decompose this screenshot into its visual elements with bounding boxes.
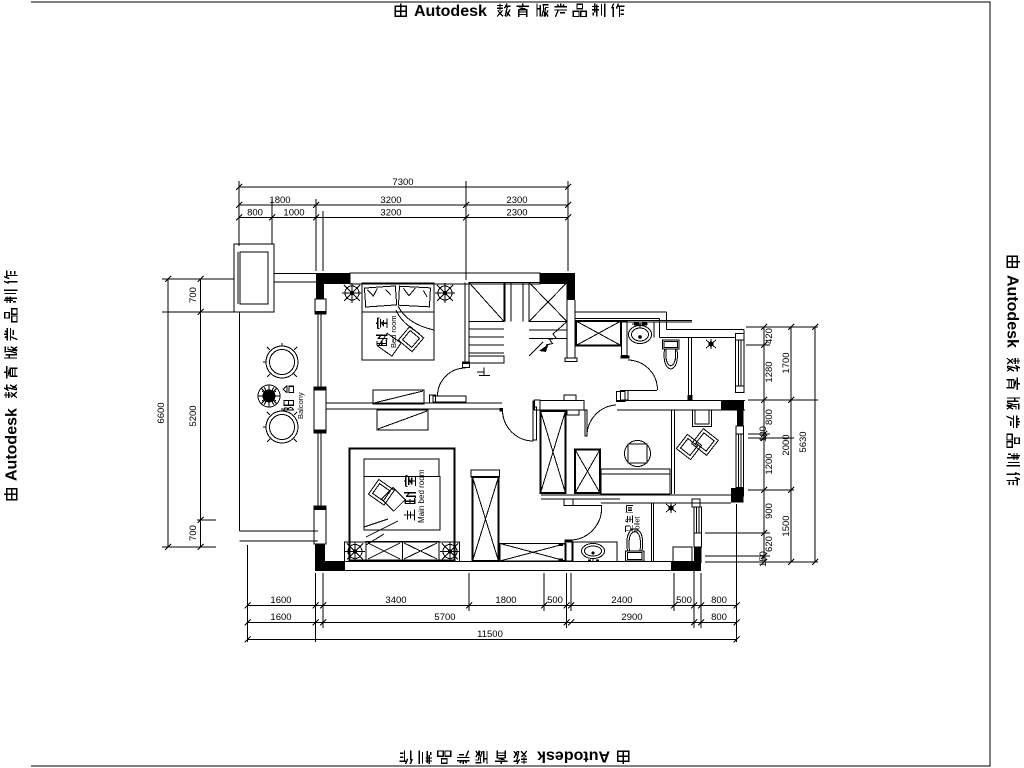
svg-text:2000: 2000 [781, 434, 792, 455]
svg-text:7300: 7300 [392, 177, 413, 188]
svg-text:11500: 11500 [477, 629, 503, 640]
svg-text:Main bed room: Main bed room [417, 469, 426, 523]
svg-text:420: 420 [764, 328, 775, 344]
svg-text:1700: 1700 [781, 352, 792, 373]
svg-text:Toilet: Toilet [635, 517, 642, 533]
svg-text:5630: 5630 [798, 431, 809, 452]
svg-text:1800: 1800 [269, 195, 290, 206]
svg-text:1800: 1800 [495, 595, 516, 606]
svg-text:Autodesk: Autodesk [537, 748, 610, 765]
svg-text:500: 500 [676, 595, 692, 606]
svg-text:Bed room: Bed room [389, 315, 398, 348]
svg-text:700: 700 [188, 287, 199, 303]
svg-text:5700: 5700 [434, 612, 455, 623]
svg-text:1280: 1280 [764, 361, 775, 382]
svg-text:Autodesk: Autodesk [1004, 275, 1021, 348]
svg-text:2300: 2300 [506, 195, 527, 206]
svg-text:3200: 3200 [380, 208, 401, 219]
svg-text:900: 900 [764, 503, 775, 519]
svg-text:800: 800 [764, 409, 775, 425]
svg-text:Autodesk: Autodesk [4, 408, 21, 481]
svg-text:1500: 1500 [781, 515, 792, 536]
svg-text:Balcony: Balcony [296, 392, 305, 419]
svg-text:2900: 2900 [621, 612, 642, 623]
svg-text:1000: 1000 [283, 208, 304, 219]
svg-text:1600: 1600 [270, 595, 291, 606]
svg-text:1600: 1600 [270, 612, 291, 623]
svg-text:1200: 1200 [764, 453, 775, 474]
svg-text:Autodesk: Autodesk [414, 3, 487, 20]
svg-text:620: 620 [764, 536, 775, 552]
svg-text:500: 500 [547, 595, 563, 606]
svg-text:3400: 3400 [385, 595, 406, 606]
svg-text:5200: 5200 [188, 405, 199, 426]
svg-text:6600: 6600 [156, 402, 167, 423]
svg-text:800: 800 [247, 208, 263, 219]
svg-text:800: 800 [711, 595, 727, 606]
svg-text:3200: 3200 [380, 195, 401, 206]
svg-text:100: 100 [758, 426, 769, 442]
svg-text:2400: 2400 [611, 595, 632, 606]
svg-text:150: 150 [758, 551, 769, 567]
svg-text:700: 700 [188, 525, 199, 541]
svg-text:800: 800 [711, 612, 727, 623]
svg-text:2300: 2300 [506, 208, 527, 219]
